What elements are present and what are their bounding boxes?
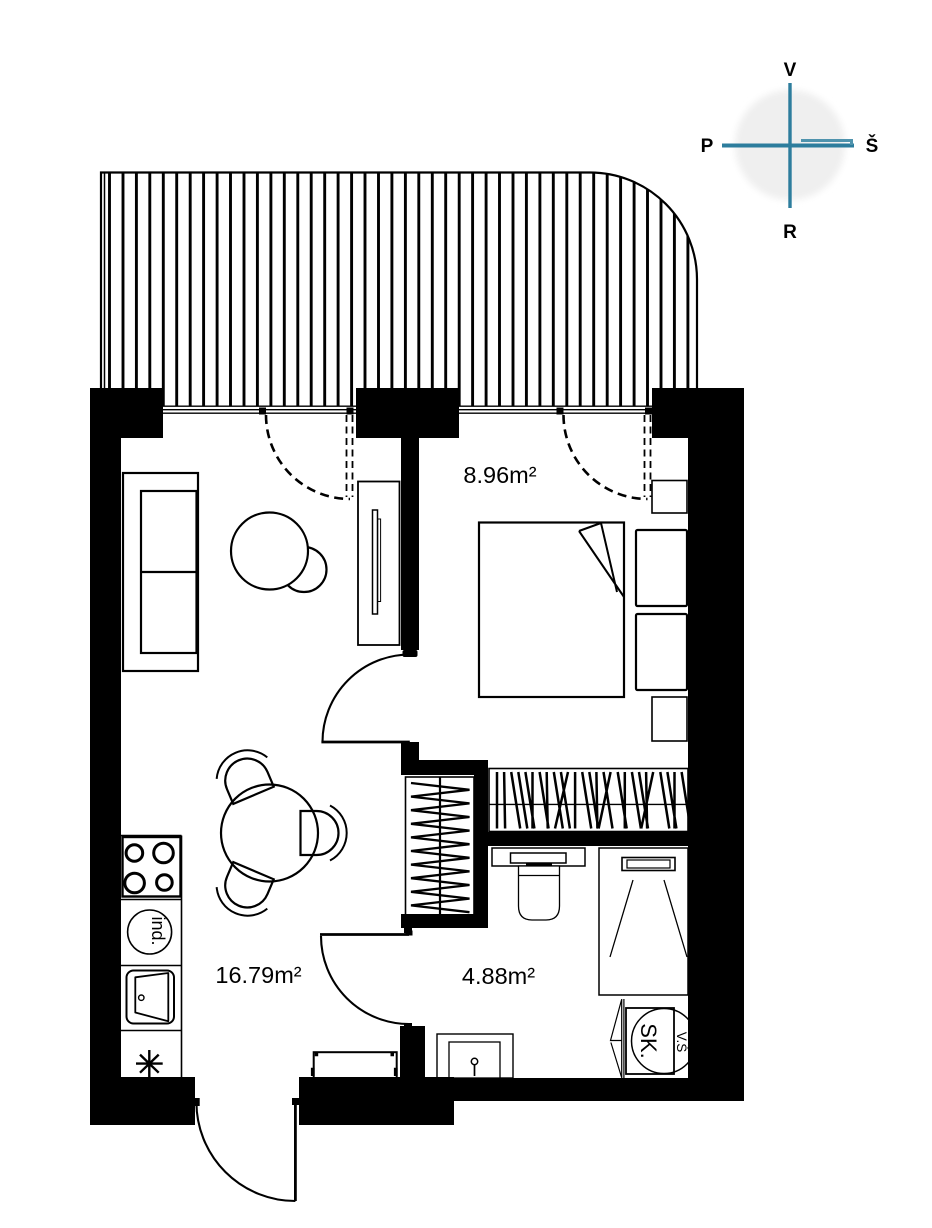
svg-text:R: R (783, 222, 797, 243)
svg-text:16.79m²: 16.79m² (215, 962, 301, 988)
svg-text:V.Š: V.Š (674, 1032, 689, 1053)
svg-text:8.96m²: 8.96m² (463, 462, 536, 488)
svg-text:P: P (701, 136, 714, 157)
svg-text:4.88m²: 4.88m² (462, 963, 535, 989)
svg-text:SK.: SK. (636, 1023, 661, 1058)
svg-text:V: V (784, 60, 797, 81)
svg-text:ind.: ind. (148, 916, 168, 945)
svg-text:Š: Š (866, 135, 879, 157)
